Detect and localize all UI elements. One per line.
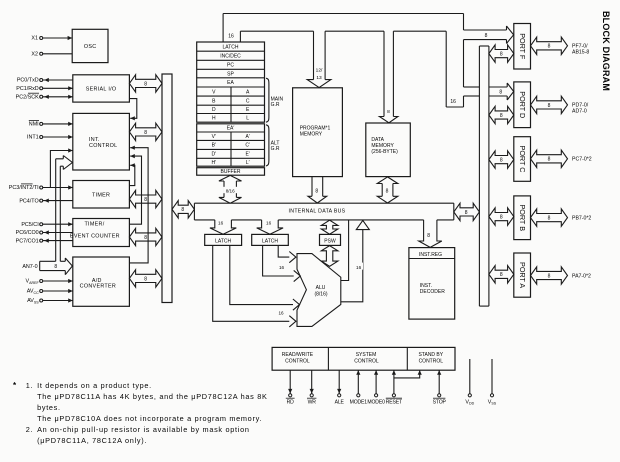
svg-text:STOP: STOP [433, 400, 447, 406]
svg-text:H: H [212, 116, 216, 122]
svg-text:BLOCK DIAGRAM: BLOCK DIAGRAM [601, 11, 611, 91]
svg-text:ALU: ALU [316, 285, 326, 291]
svg-text:A′: A′ [246, 134, 250, 140]
svg-text:8: 8 [500, 215, 503, 221]
svg-text:An on-chip pull-up resistor is: An on-chip pull-up resistor is available… [37, 425, 250, 434]
svg-text:8/16: 8/16 [226, 189, 235, 194]
svg-text:PORT D: PORT D [518, 91, 527, 118]
svg-text:LATCH: LATCH [222, 44, 238, 50]
svg-text:NMI: NMI [29, 122, 39, 128]
svg-text:SYSTEM: SYSTEM [356, 352, 377, 358]
svg-text:X1: X1 [31, 36, 38, 42]
svg-text:X2: X2 [31, 52, 38, 58]
svg-text:MODE0: MODE0 [367, 400, 385, 406]
svg-text:H′: H′ [212, 160, 217, 166]
svg-text:CONTROL: CONTROL [285, 359, 310, 365]
svg-text:8: 8 [386, 189, 389, 195]
svg-text:The μPD78C11A has 4K bytes, an: The μPD78C11A has 4K bytes, and the μPD7… [37, 392, 267, 401]
svg-text:BUFFER: BUFFER [221, 169, 241, 175]
svg-text:8: 8 [548, 103, 551, 109]
svg-text:WR: WR [308, 400, 317, 406]
svg-text:INC/DEC: INC/DEC [220, 54, 241, 60]
svg-text:8: 8 [181, 207, 184, 213]
svg-text:2.: 2. [26, 425, 34, 434]
svg-text:STAND BY: STAND BY [418, 352, 443, 358]
svg-text:PA7-0*2: PA7-0*2 [572, 273, 591, 279]
svg-text:8: 8 [548, 157, 551, 163]
svg-text:(256-BYTE): (256-BYTE) [371, 149, 398, 155]
svg-text:8: 8 [500, 113, 503, 119]
svg-text:READ/WRITE: READ/WRITE [282, 352, 314, 358]
svg-text:CONTROL: CONTROL [419, 359, 444, 365]
svg-text:RESET: RESET [386, 400, 402, 406]
svg-text:16: 16 [266, 221, 272, 226]
svg-text:12/: 12/ [316, 68, 323, 74]
svg-text:PROGRAM*1: PROGRAM*1 [300, 125, 331, 131]
svg-text:PF7-0/: PF7-0/ [572, 43, 588, 49]
svg-text:OSC: OSC [84, 44, 97, 50]
svg-text:C: C [246, 98, 250, 104]
svg-text:SP: SP [227, 71, 234, 77]
svg-text:D′: D′ [212, 152, 217, 158]
svg-text:PC1/RxD: PC1/RxD [16, 86, 39, 92]
svg-text:(μPD78C11A, 78C12A only).: (μPD78C11A, 78C12A only). [37, 436, 147, 445]
svg-text:DECODER: DECODER [420, 289, 445, 295]
svg-text:MODE1: MODE1 [350, 400, 368, 406]
svg-text:G.R: G.R [271, 146, 280, 152]
svg-text:TIMER: TIMER [92, 192, 110, 198]
svg-text:CONVERTER: CONVERTER [80, 284, 116, 290]
svg-text:CONTROL: CONTROL [89, 143, 117, 149]
svg-text:8: 8 [548, 273, 551, 279]
svg-text:8: 8 [465, 210, 468, 216]
svg-text:PC0/TxD: PC0/TxD [17, 78, 39, 84]
svg-text:C′: C′ [245, 143, 250, 149]
svg-text:PC3/INT2/TI: PC3/INT2/TI [9, 185, 39, 191]
svg-text:EVENT COUNTER: EVENT COUNTER [70, 233, 120, 239]
svg-text:PC5/CI: PC5/CI [21, 222, 38, 228]
svg-text:CONTROL: CONTROL [354, 359, 379, 365]
svg-text:INTERNAL DATA BUS: INTERNAL DATA BUS [289, 208, 346, 214]
svg-text:16: 16 [279, 265, 285, 270]
svg-text:E′: E′ [246, 152, 250, 158]
svg-text:8: 8 [315, 189, 318, 195]
svg-text:SERIAL I/O: SERIAL I/O [86, 86, 117, 92]
svg-text:INT1: INT1 [27, 135, 39, 141]
svg-text:D: D [212, 107, 216, 113]
svg-text:INST.REG: INST.REG [419, 252, 442, 258]
svg-text:8: 8 [387, 109, 390, 115]
svg-text:PSW: PSW [324, 239, 336, 245]
svg-text:G.R: G.R [271, 102, 280, 108]
svg-text:8: 8 [548, 44, 551, 50]
svg-text:8: 8 [548, 216, 551, 222]
svg-text:(8/16): (8/16) [314, 291, 327, 297]
svg-text:13: 13 [316, 75, 322, 81]
svg-text:8: 8 [427, 233, 430, 239]
svg-text:V′: V′ [212, 134, 216, 140]
svg-text:PORT A: PORT A [518, 262, 527, 288]
svg-text:8: 8 [500, 272, 503, 278]
svg-text:PORT B: PORT B [518, 205, 527, 232]
svg-text:8: 8 [144, 276, 147, 282]
svg-text:PC: PC [227, 63, 234, 69]
svg-text:8: 8 [500, 158, 503, 164]
svg-text:PD7-0/: PD7-0/ [572, 103, 589, 109]
svg-text:PORT F: PORT F [518, 33, 527, 60]
svg-text:8: 8 [499, 89, 502, 95]
svg-text:The μPD78C10A does not incorpo: The μPD78C10A does not incorporate a pro… [37, 414, 262, 423]
svg-text:8: 8 [54, 264, 57, 270]
svg-text:8: 8 [144, 235, 147, 241]
svg-text:PC4/TO: PC4/TO [19, 198, 38, 204]
svg-text:PC2/SCK: PC2/SCK [16, 95, 39, 101]
svg-text:ALE: ALE [335, 400, 345, 406]
svg-text:EA: EA [227, 80, 234, 86]
svg-text:AB15-8: AB15-8 [572, 50, 589, 56]
svg-text:bytes.: bytes. [37, 403, 61, 412]
svg-text:8: 8 [144, 81, 147, 87]
svg-text:AD7-0: AD7-0 [572, 109, 587, 115]
svg-text:It depends on a product type.: It depends on a product type. [37, 381, 152, 390]
svg-text:LATCH: LATCH [215, 239, 231, 245]
svg-text:PC7/CO1: PC7/CO1 [16, 238, 39, 244]
svg-text:8: 8 [144, 130, 147, 136]
svg-text:LATCH: LATCH [262, 239, 278, 245]
svg-text:L: L [246, 116, 249, 122]
svg-text:16: 16 [450, 99, 456, 105]
svg-text:AN7-0: AN7-0 [22, 264, 37, 270]
svg-text:1.: 1. [26, 381, 34, 390]
svg-text:16: 16 [278, 310, 284, 315]
svg-text:PC6/CO0: PC6/CO0 [16, 230, 39, 236]
svg-text:16: 16 [356, 265, 362, 270]
svg-text:PC7-0*2: PC7-0*2 [572, 157, 592, 163]
svg-text:TIMER/: TIMER/ [84, 222, 104, 228]
svg-text:8: 8 [485, 33, 488, 39]
svg-text:L′: L′ [246, 160, 250, 166]
svg-text:RD: RD [287, 400, 295, 406]
svg-text:8: 8 [144, 197, 147, 203]
svg-text:16: 16 [218, 221, 224, 226]
svg-text:PB7-0*2: PB7-0*2 [572, 216, 591, 222]
svg-text:8: 8 [500, 52, 503, 58]
svg-text:MEMORY: MEMORY [300, 132, 323, 138]
svg-text:B′: B′ [212, 143, 216, 149]
svg-text:16: 16 [228, 34, 234, 40]
svg-text:EA′: EA′ [227, 126, 235, 132]
svg-text:PORT C: PORT C [518, 146, 527, 173]
